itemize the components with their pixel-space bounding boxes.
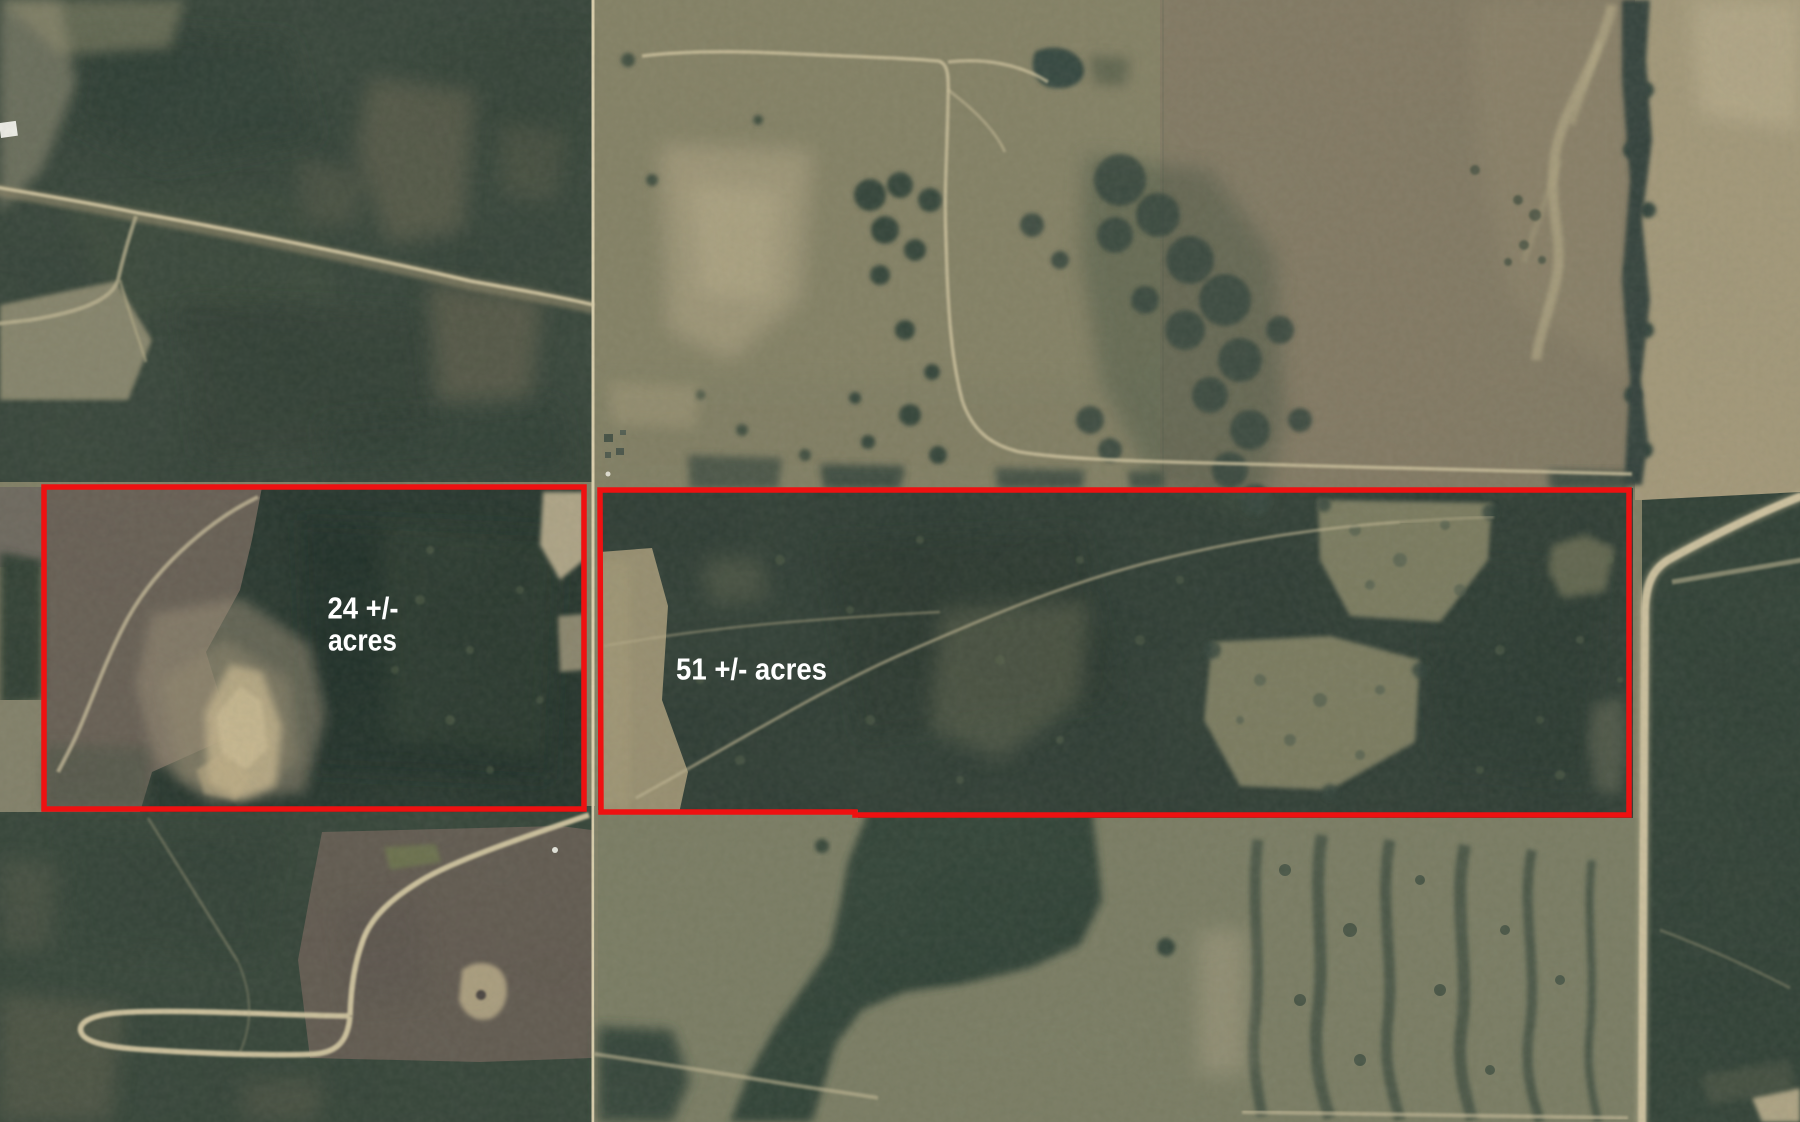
svg-text:24 +/-: 24 +/-	[328, 592, 399, 626]
svg-text:51 +/- acres: 51 +/- acres	[676, 653, 827, 687]
svg-text:acres: acres	[328, 624, 397, 658]
